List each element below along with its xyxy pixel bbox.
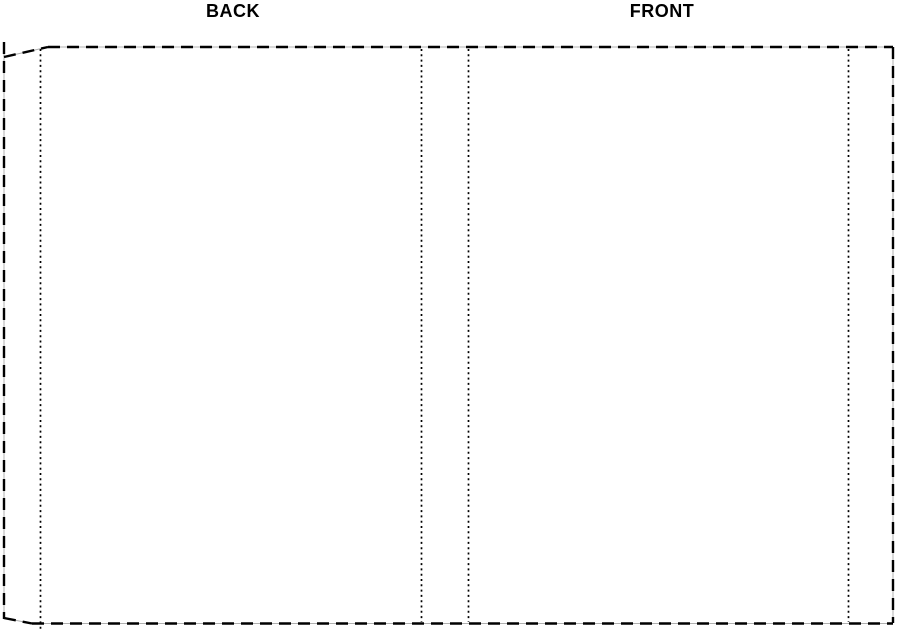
cut-outline-dashed <box>4 42 893 624</box>
fold-lines-dotted <box>41 49 849 629</box>
book-jacket-template-diagram: BACK FRONT <box>0 0 900 631</box>
trim-underlay-lines <box>4 42 893 624</box>
panel-labels: BACK FRONT <box>206 1 694 21</box>
cut-line-top-left-taper <box>4 47 48 57</box>
front-panel-label: FRONT <box>630 1 695 21</box>
back-panel-label: BACK <box>206 1 260 21</box>
book-jacket-template-page: BACK FRONT <box>0 0 900 631</box>
